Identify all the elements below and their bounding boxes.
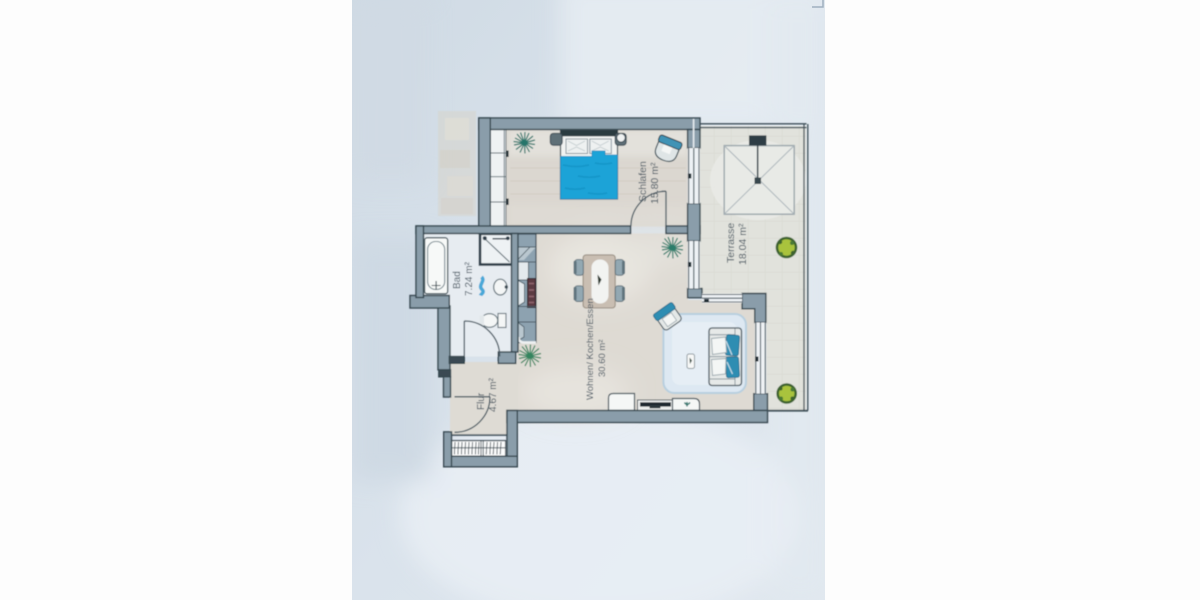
svg-text:30.60 m²: 30.60 m² [597,340,608,378]
svg-text:Schlafen: Schlafen [637,161,649,202]
svg-text:18.04 m²: 18.04 m² [737,223,749,265]
svg-text:Wohnen/ Kochen/Essen: Wohnen/ Kochen/Essen [585,298,596,400]
svg-text:7.24 m²: 7.24 m² [464,261,475,296]
svg-text:Terrasse: Terrasse [725,223,737,263]
svg-text:15.80 m²: 15.80 m² [649,162,661,204]
svg-text:4.67 m²: 4.67 m² [488,377,499,412]
svg-text:Flur: Flur [476,392,487,410]
svg-text:Bad: Bad [452,271,463,289]
